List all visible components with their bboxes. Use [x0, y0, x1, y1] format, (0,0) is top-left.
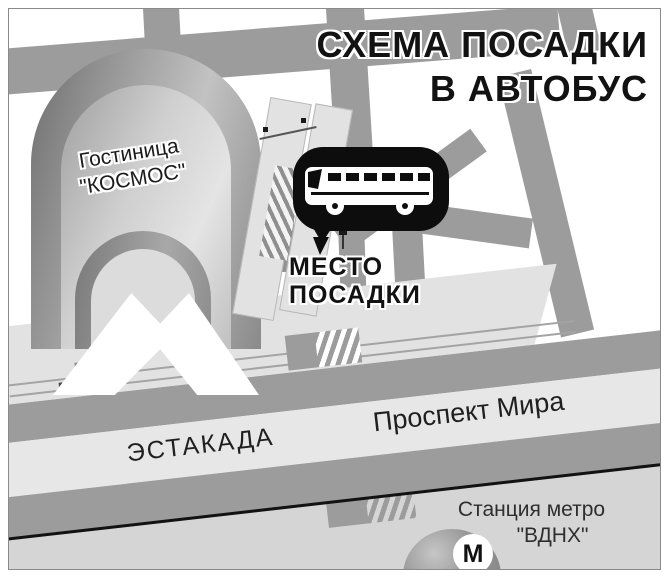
- boarding-point-label: МЕСТО ПОСАДКИ: [289, 253, 421, 309]
- boarding-line1: МЕСТО: [289, 253, 421, 281]
- railing-post: [263, 127, 268, 132]
- overpass-label: ЭСТАКАДА: [125, 423, 275, 469]
- metro-station-label: Станция метро "ВДНХ": [439, 497, 624, 549]
- stairs-hatch-stripes: [314, 328, 362, 368]
- title-line1: СХЕМА ПОСАДКИ: [317, 23, 648, 67]
- page-title: СХЕМА ПОСАДКИ В АВТОБУС: [317, 23, 648, 111]
- map-frame: ЭСТАКАДА Проспект Мира Гостиница "КОСМОС…: [8, 8, 661, 570]
- station-line1: Станция метро: [439, 497, 624, 523]
- bus-icon: [291, 145, 455, 269]
- boarding-line2: ПОСАДКИ: [289, 281, 421, 309]
- boarding-scheme-image: ЭСТАКАДА Проспект Мира Гостиница "КОСМОС…: [0, 0, 668, 577]
- station-line2: "ВДНХ": [481, 523, 624, 549]
- hotel-building: Гостиница "КОСМОС": [23, 41, 273, 376]
- railing-post: [301, 118, 306, 123]
- title-line2: В АВТОБУС: [317, 67, 648, 111]
